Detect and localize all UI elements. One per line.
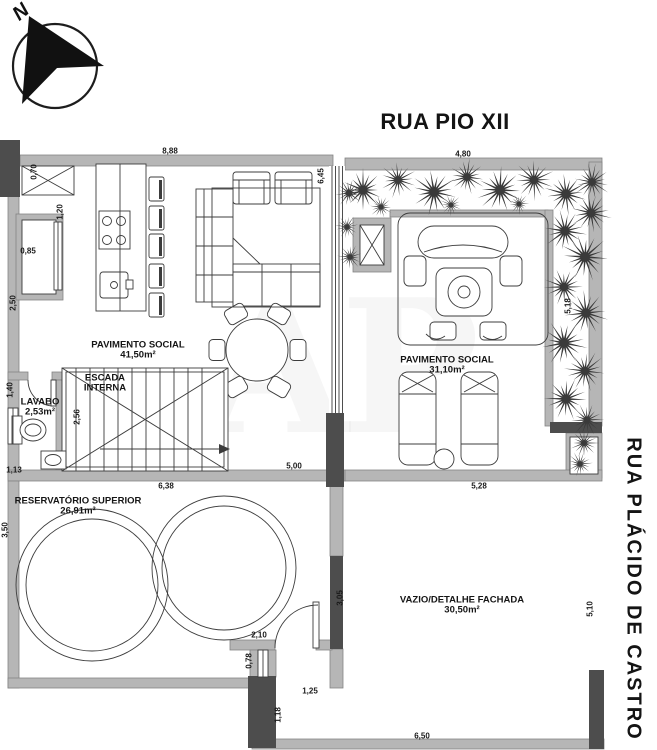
sun-lounger-icon bbox=[461, 372, 498, 465]
dimension-label: 1,18 bbox=[274, 707, 283, 723]
door-leaf bbox=[313, 602, 319, 648]
dimension-label: 6,38 bbox=[158, 482, 174, 491]
room-label-pavimento-social-2: PAVIMENTO SOCIAL31,10m² bbox=[400, 356, 493, 377]
dimension-label: 1,40 bbox=[6, 382, 15, 398]
dimension-label: 2,10 bbox=[251, 631, 267, 640]
dimension-label: 4,80 bbox=[455, 150, 471, 159]
sofa bbox=[196, 189, 320, 306]
dimension-label: 0,85 bbox=[20, 247, 36, 256]
dimension-label: 8,88 bbox=[162, 147, 178, 156]
room-label-escada-interna: ESCADAINTERNA bbox=[84, 374, 126, 395]
dimension-label: 2,56 bbox=[73, 409, 82, 425]
dimension-label: 0,70 bbox=[30, 164, 39, 180]
dimension-label: 1,13 bbox=[6, 466, 22, 475]
dimension-label: 5,00 bbox=[286, 462, 302, 471]
sink-icon bbox=[100, 272, 133, 298]
room-label-pavimento-social-1: PAVIMENTO SOCIAL41,50m² bbox=[91, 341, 184, 362]
street-name-top: RUA PIO XII bbox=[380, 109, 509, 135]
room-label-vazio-detalhe-fachada: VAZIO/DETALHE FACHADA30,50m² bbox=[400, 596, 524, 617]
room-label-reservatorio-superior: RESERVATÓRIO SUPERIOR26,91m² bbox=[15, 497, 142, 518]
dimension-label: 5,28 bbox=[471, 482, 487, 491]
dimension-label: 0,78 bbox=[245, 653, 254, 669]
dimension-label: 5,18 bbox=[564, 298, 573, 314]
dimension-label: 2,50 bbox=[9, 295, 18, 311]
dimension-label: 3,05 bbox=[336, 590, 345, 606]
side-table-icon bbox=[434, 449, 454, 469]
room-label-lavabo: LAVABO2,53m² bbox=[21, 398, 60, 419]
dimension-label: 6,45 bbox=[317, 168, 326, 184]
dimension-label: 1,25 bbox=[302, 687, 318, 696]
terrace-sofa-icon bbox=[404, 226, 522, 340]
dining-table-icon bbox=[226, 319, 288, 381]
dimension-label: 3,50 bbox=[1, 522, 10, 538]
floor-plan: AP bbox=[0, 0, 657, 750]
dimension-label: 6,50 bbox=[414, 732, 430, 741]
sun-lounger-icon bbox=[399, 372, 436, 465]
plant-icon bbox=[370, 196, 392, 218]
dimension-label: 1,20 bbox=[56, 204, 65, 220]
dimension-label: 5,10 bbox=[586, 601, 595, 617]
north-arrow-icon bbox=[13, 16, 104, 108]
street-name-right: RUA PLÁCIDO DE CASTRO bbox=[622, 437, 645, 740]
